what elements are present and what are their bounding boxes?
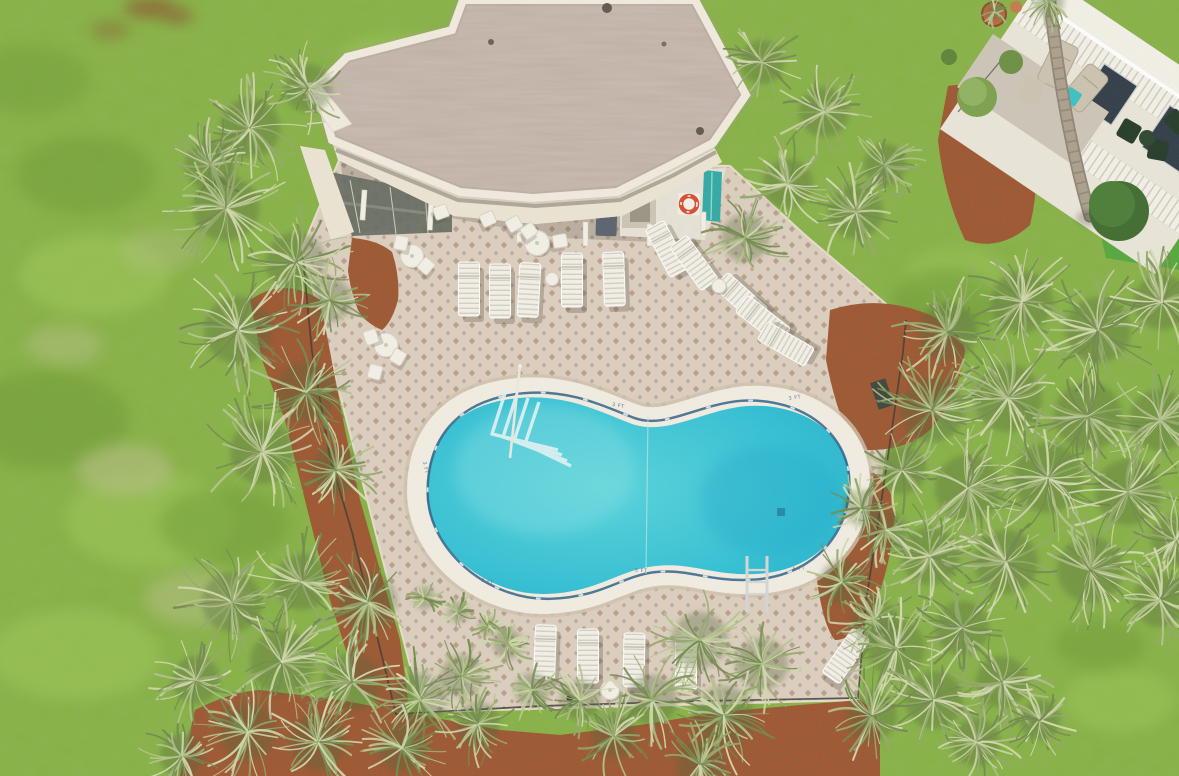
- aerial-photo: Aerial drone view of a kidney-shaped com…: [0, 0, 1179, 776]
- aerial-photo-svg: Aerial drone view of a kidney-shaped com…: [0, 0, 1179, 776]
- photo-grain: [0, 0, 1179, 776]
